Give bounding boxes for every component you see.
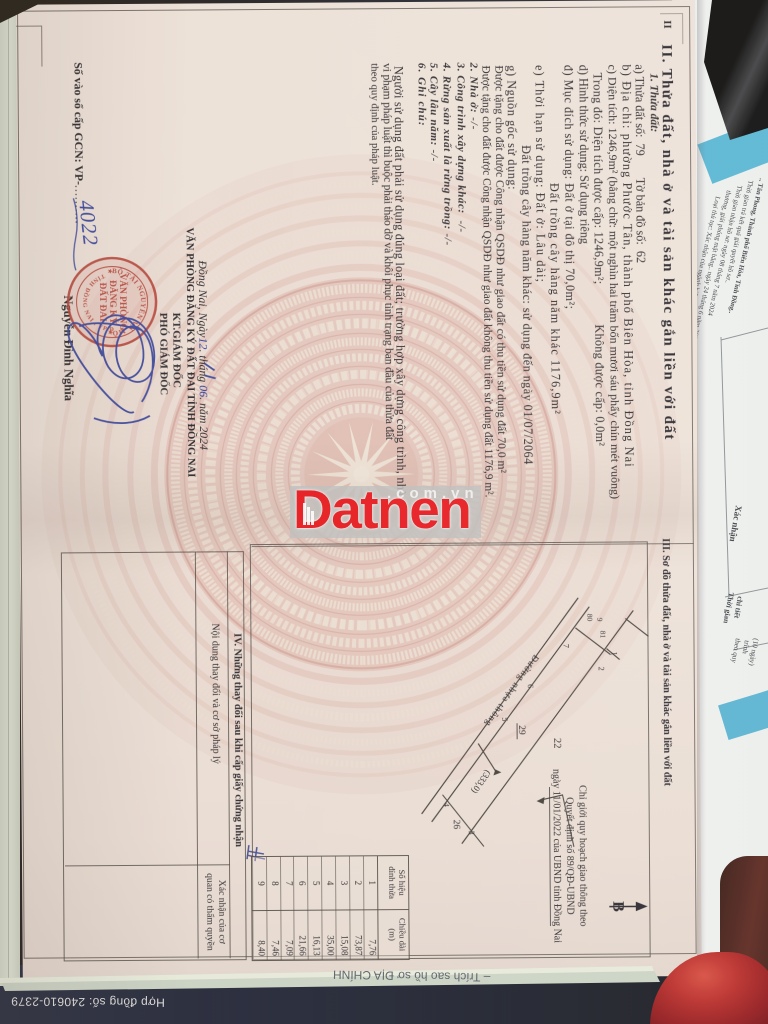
- svg-text:Thời gian: Thời gian: [721, 592, 735, 625]
- svg-text:80: 80: [585, 614, 594, 622]
- svg-text:81: 81: [598, 631, 607, 639]
- svg-text:6: 6: [526, 684, 535, 688]
- svg-text:theo quy: theo quy: [730, 638, 742, 664]
- svg-text:3: 3: [467, 831, 476, 835]
- svg-text:ngày 11/01/2022 của UBND tỉnh: ngày 11/01/2022 của UBND tỉnh Đồng Nai: [550, 769, 562, 943]
- svg-text:7: 7: [561, 644, 570, 648]
- svg-text:9: 9: [595, 618, 604, 622]
- svg-text:(333,0): (333,0): [470, 768, 493, 795]
- svg-text:5: 5: [500, 717, 509, 721]
- svg-text:B: B: [609, 901, 626, 912]
- svg-text:22: 22: [551, 738, 562, 749]
- svg-text:2: 2: [597, 667, 606, 671]
- svg-text:26: 26: [451, 820, 461, 830]
- svg-text:Đường nhựa thông: Đường nhựa thông: [482, 652, 540, 728]
- svg-text:4: 4: [442, 803, 451, 807]
- svg-text:Chỉ giới quy hoạch giao thông: Chỉ giới quy hoạch giao thông theo: [576, 785, 588, 926]
- svg-text:Xác nhận: Xác nhận: [728, 505, 744, 543]
- svg-text:1: 1: [610, 652, 619, 656]
- svg-text:29: 29: [516, 725, 526, 735]
- svg-text:Quyết định số 89/QĐ-UBND: Quyết định số 89/QĐ-UBND: [564, 797, 576, 915]
